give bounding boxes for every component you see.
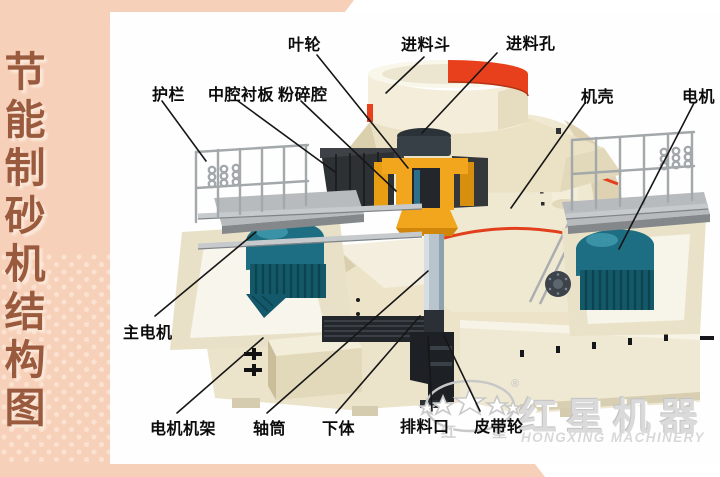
label-motor-frame: 电机机架: [150, 415, 216, 439]
label-main-motor: 主电机: [123, 319, 173, 343]
page-title: 节能制砂机结构图: [0, 42, 110, 442]
label-discharge-port: 排料口: [400, 413, 450, 437]
label-casing: 机壳: [581, 83, 614, 107]
label-shaft-tube: 轴筒: [253, 415, 286, 439]
label-feed-hopper: 进料斗: [401, 31, 451, 55]
page: { "sidebar": { "title": "节能制砂机结构图" }, "d…: [0, 0, 720, 477]
label-feed-hole: 进料孔: [506, 30, 556, 54]
flange-part: [545, 271, 571, 297]
label-crushing-cavity: 粉碎腔: [278, 81, 328, 105]
feed-hopper-part: [367, 60, 528, 134]
label-motor: 电机: [682, 83, 715, 107]
label-impeller: 叶轮: [288, 31, 321, 55]
label-middle-cavity-liner: 中腔衬板: [208, 81, 274, 105]
label-lower-body: 下体: [322, 415, 355, 439]
label-belt-pulley: 皮带轮: [474, 413, 524, 437]
registered-mark: ®: [511, 378, 519, 390]
label-guardrail: 护栏: [152, 81, 185, 105]
brand-name-en: HONGXING MACHINERY: [521, 430, 705, 445]
